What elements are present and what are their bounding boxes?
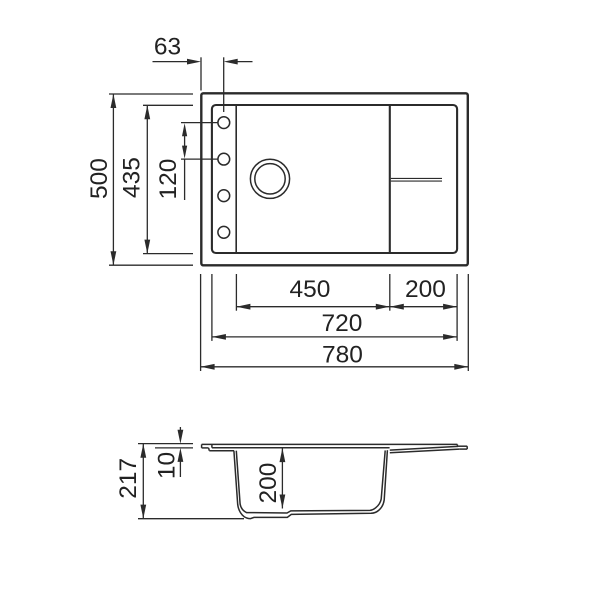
svg-text:217: 217: [115, 458, 142, 499]
svg-text:720: 720: [322, 310, 363, 337]
svg-text:10: 10: [153, 452, 180, 479]
svg-text:200: 200: [255, 463, 282, 504]
svg-text:120: 120: [155, 159, 182, 200]
svg-text:63: 63: [154, 33, 181, 60]
svg-text:200: 200: [405, 276, 446, 303]
svg-text:780: 780: [322, 342, 363, 369]
svg-text:500: 500: [86, 158, 113, 199]
svg-text:450: 450: [290, 276, 331, 303]
svg-text:435: 435: [118, 157, 145, 198]
